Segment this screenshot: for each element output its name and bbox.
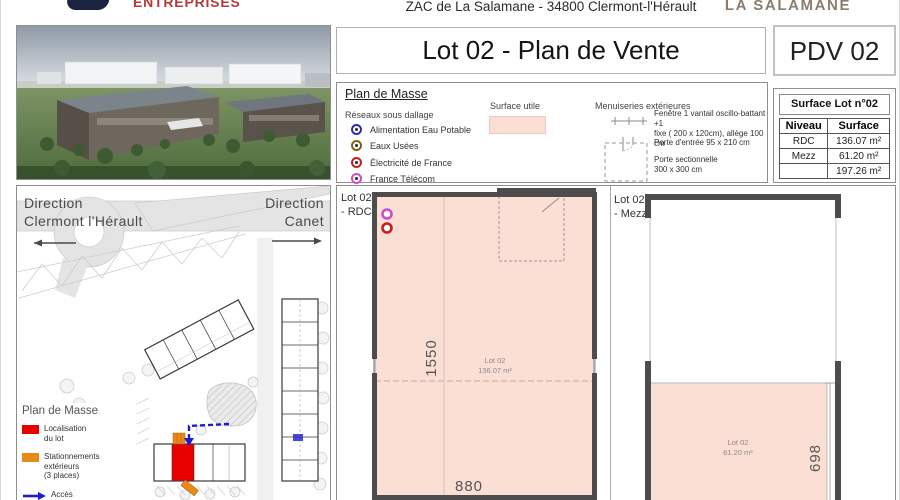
window-right (593, 359, 595, 373)
cell-niveau: Mezz (780, 149, 828, 164)
company-logo-text: ENTREPRISES (133, 0, 241, 10)
table-row-total: 197.26 m² (780, 164, 890, 179)
cell-surface: 61.20 m² (828, 149, 890, 164)
surface-table-title: Surface Lot n°02 (779, 94, 890, 115)
legend-label: Stationnements extérieurs (3 places) (44, 452, 100, 481)
sewage-marker-icon (351, 140, 362, 151)
table-row: Mezz 61.20 m² (780, 149, 890, 164)
site-legend: Plan de Masse Localisation du lot Statio… (19, 403, 118, 500)
surface-table: Niveau Surface RDC 136.07 m² Mezz 61.20 … (779, 118, 890, 179)
building-north (145, 300, 254, 379)
direction-clermont-label: Direction Clermont l'Hérault (24, 195, 194, 230)
legend-panel: Plan de Masse Réseaux sous dallage Alime… (336, 82, 768, 183)
sheet-ref-box: PDV 02 (773, 25, 896, 76)
surface-utile-swatch (489, 116, 546, 134)
arrow-left-icon (26, 238, 78, 248)
lot-02-location (172, 444, 194, 481)
network-label: Alimentation Eau Potable (370, 125, 471, 135)
floor-plans-panel: Lot 02 - RDC Lot 02 - Mezz (336, 185, 896, 500)
col-surface: Surface (828, 119, 890, 134)
network-item-sewage: Eaux Usées (351, 140, 419, 151)
lot-02-parking (173, 433, 185, 444)
surface-table-panel: Surface Lot n°02 Niveau Surface RDC 136.… (773, 88, 896, 183)
rdc-width-dimension: 880 (455, 478, 483, 495)
access-arrow-icon (22, 491, 46, 500)
brand-salamane: LA SALAMANE (723, 0, 853, 14)
aerial-render-panel (16, 25, 331, 180)
site-legend-heading: Plan de Masse (22, 405, 118, 417)
sectional-door-symbol-icon (603, 141, 649, 183)
project-address: ZAC de La Salamane - 34800 Clermont-l'Hé… (336, 0, 766, 14)
mezz-height-dimension: 698 (807, 444, 824, 472)
network-label: Électricité de France (370, 158, 452, 168)
cell-surface: 136.07 m² (828, 134, 890, 149)
mezz-lot-name: Lot 02 (728, 438, 749, 447)
site-plan-panel: Direction Clermont l'Hérault Direction C… (16, 185, 331, 500)
mezz-lot-area: 61.20 m² (723, 448, 753, 457)
joinery-item-sectional: Porte sectionnelle 300 x 300 cm (654, 155, 718, 175)
direction-canet-label: Direction Canet (204, 195, 324, 230)
legend-item-stationnements: Stationnements extérieurs (3 places) (22, 452, 118, 481)
mezz-floor-plan: Lot 02 61.20 m² 698 (610, 186, 897, 500)
plan-sheet: ENTREPRISES ZAC de La Salamane - 34800 C… (0, 0, 900, 500)
building-south (154, 444, 245, 481)
cell-surface-total: 197.26 m² (828, 164, 890, 179)
window-symbol-icon (609, 115, 649, 127)
legend-item-localisation: Localisation du lot (22, 424, 118, 443)
legend-item-acces: Accès Véhicules (22, 490, 118, 500)
network-item-telecom: France Télécom (351, 173, 435, 184)
network-label: France Télécom (370, 174, 435, 184)
sheet-title: Lot 02 - Plan de Vente (337, 28, 765, 73)
rdc-surface-utile (375, 194, 594, 497)
col-niveau: Niveau (780, 119, 828, 134)
joinery-item-door: Porte d'entrée 95 x 210 cm (654, 138, 750, 148)
network-item-water: Alimentation Eau Potable (351, 124, 471, 135)
lot-swatch (22, 425, 39, 434)
cell-niveau (780, 164, 828, 179)
parking-swatch (22, 453, 39, 462)
mezz-void (650, 197, 836, 383)
water-marker-icon (351, 124, 362, 135)
sheet-ref: PDV 02 (775, 27, 894, 75)
surface-utile-heading: Surface utile (490, 101, 540, 111)
rdc-height-dimension: 1550 (423, 339, 440, 376)
telecom-marker (383, 210, 392, 219)
legend-label: Localisation du lot (44, 424, 86, 443)
network-label: Eaux Usées (370, 141, 419, 151)
arrow-right-icon (270, 236, 322, 246)
telecom-marker-icon (351, 173, 362, 184)
rdc-floor-plan: 1550 Lot 02 136.07 m² 880 (337, 186, 610, 500)
electricity-marker-icon (351, 157, 362, 168)
legend-label: Accès Véhicules (51, 490, 86, 500)
aerial-render-image (17, 26, 330, 179)
networks-heading: Réseaux sous dallage (345, 110, 434, 120)
network-item-electricity: Électricité de France (351, 157, 452, 168)
building-east (282, 299, 318, 481)
sheet-title-box: Lot 02 - Plan de Vente (336, 27, 766, 74)
cell-niveau: RDC (780, 134, 828, 149)
rdc-lot-name: Lot 02 (485, 356, 506, 365)
vehicle-access-arrow (184, 424, 229, 446)
legend-heading: Plan de Masse (345, 87, 428, 101)
window-left (373, 359, 375, 373)
rdc-lot-area: 136.07 m² (478, 366, 512, 375)
company-logo-mark (66, 0, 110, 10)
electricity-marker (383, 224, 392, 233)
table-row: RDC 136.07 m² (780, 134, 890, 149)
